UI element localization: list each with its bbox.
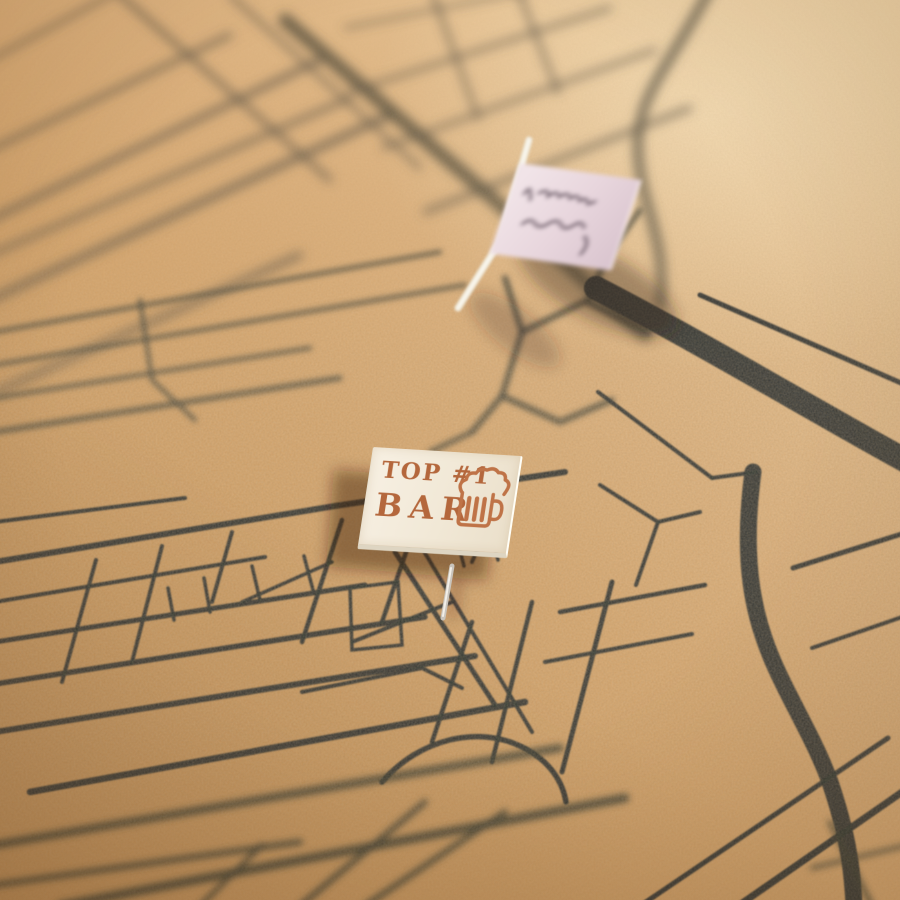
cork-grain-light bbox=[0, 0, 900, 900]
bar-label-tile: TOP #1 BAR bbox=[357, 447, 522, 558]
beer-mug-icon bbox=[447, 463, 516, 538]
street-map bbox=[0, 0, 900, 900]
photo-stage: TOP #1 BAR bbox=[0, 0, 900, 900]
